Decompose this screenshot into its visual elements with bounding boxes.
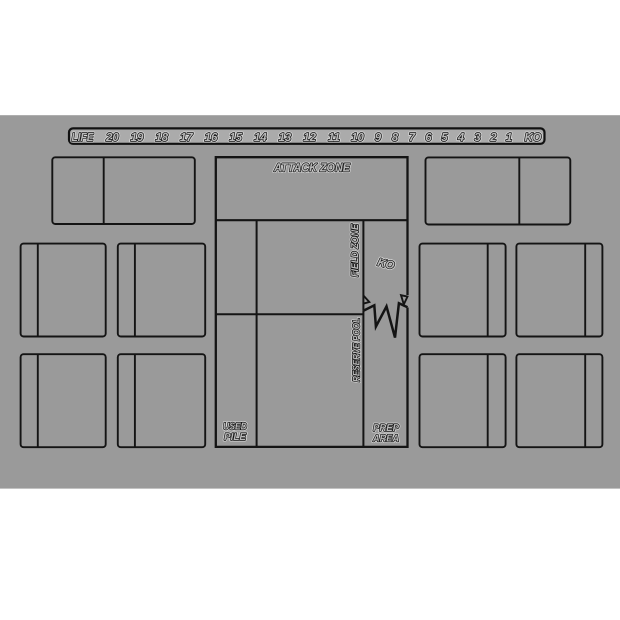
svg-text:5: 5 xyxy=(441,131,448,144)
svg-text:17: 17 xyxy=(180,131,193,144)
svg-text:AREA: AREA xyxy=(372,434,399,445)
svg-text:ATTACK ZONE: ATTACK ZONE xyxy=(273,161,351,175)
svg-text:8: 8 xyxy=(392,131,399,144)
svg-text:7: 7 xyxy=(409,131,416,144)
svg-text:RESERVE POOL: RESERVE POOL xyxy=(352,318,363,382)
svg-text:18: 18 xyxy=(155,131,168,144)
svg-text:9: 9 xyxy=(375,131,382,144)
svg-text:12: 12 xyxy=(303,131,316,144)
svg-text:USED: USED xyxy=(223,421,247,432)
svg-text:2: 2 xyxy=(489,131,497,144)
svg-text:FIELD ZONE: FIELD ZONE xyxy=(350,224,361,277)
svg-text:6: 6 xyxy=(425,131,432,144)
svg-text:13: 13 xyxy=(278,131,291,144)
svg-text:PILE: PILE xyxy=(224,432,246,443)
svg-text:16: 16 xyxy=(205,131,218,144)
svg-text:PREP: PREP xyxy=(373,423,399,434)
svg-text:19: 19 xyxy=(131,131,144,144)
svg-text:20: 20 xyxy=(105,131,119,144)
svg-text:LIFE: LIFE xyxy=(72,131,95,144)
svg-text:1: 1 xyxy=(506,131,512,144)
svg-text:10: 10 xyxy=(351,131,364,144)
svg-text:14: 14 xyxy=(254,131,267,144)
svg-text:KO: KO xyxy=(525,131,542,144)
svg-text:3: 3 xyxy=(474,131,481,144)
svg-text:4: 4 xyxy=(457,131,465,144)
svg-text:11: 11 xyxy=(328,131,340,144)
svg-text:15: 15 xyxy=(229,131,242,144)
